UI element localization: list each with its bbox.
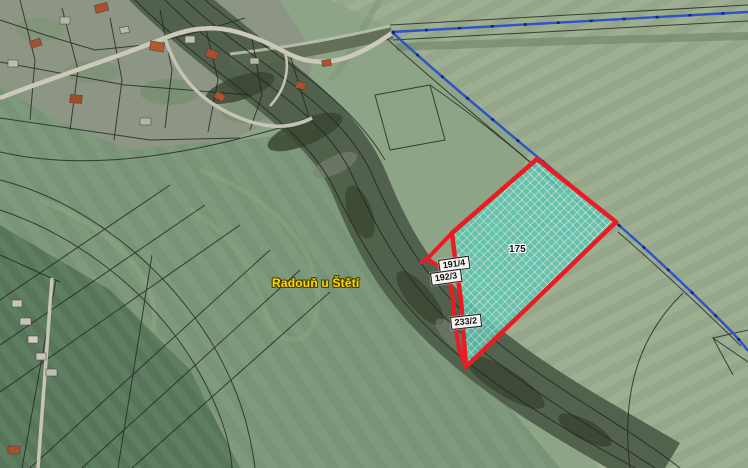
place-label: Radouň u Štětí [272, 276, 359, 290]
aerial-basemap [0, 0, 748, 468]
cadastral-aerial-map[interactable]: Radouň u Štětí 175 191/4 192/3 233/2 [0, 0, 748, 468]
highlighted-parcel-number: 175 [509, 244, 526, 255]
